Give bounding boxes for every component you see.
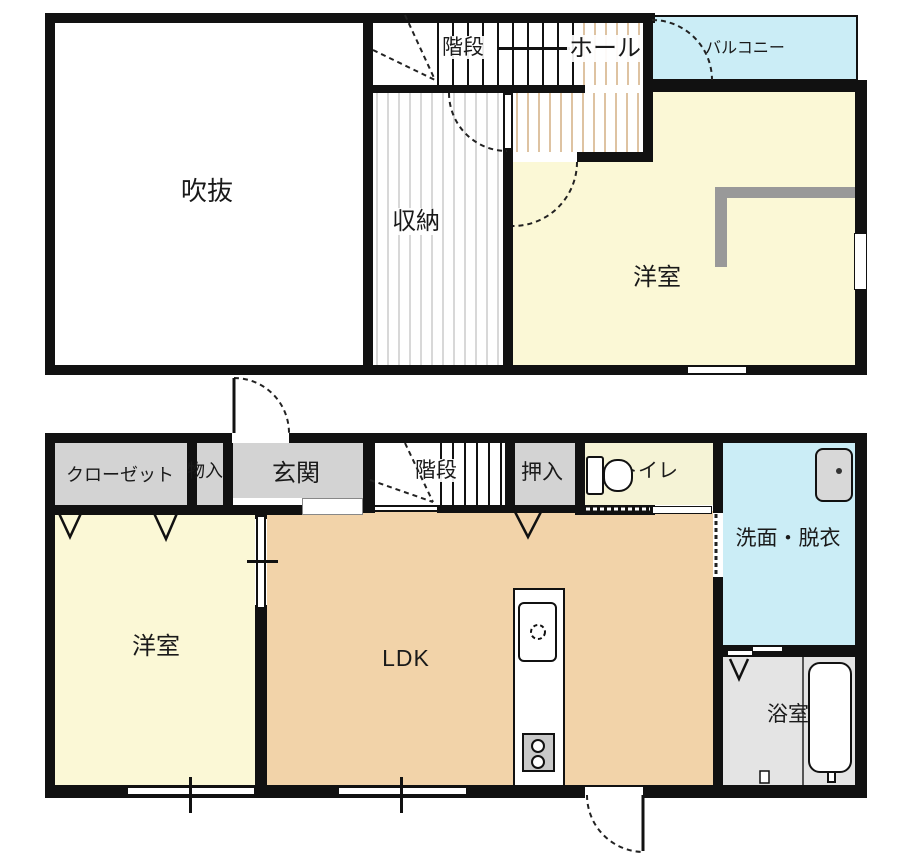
bedroom-rail-vertical — [715, 187, 727, 267]
wall — [855, 433, 867, 798]
window-2f-bottom — [687, 366, 747, 374]
storage-door-leaf — [503, 93, 513, 150]
entrance-door-opening — [232, 433, 289, 443]
window-2f-right — [854, 233, 867, 290]
wall — [855, 80, 867, 375]
room-label-washroom: 洗面・脱衣 — [718, 528, 858, 550]
sliding-door-tick — [247, 560, 278, 563]
room-label-entrance: 玄関 — [246, 461, 346, 486]
room-label-small-storage: 物入 — [172, 462, 238, 481]
wall — [437, 505, 512, 513]
kitchen-sink-icon — [518, 602, 557, 662]
hall-floor-hatch-lower — [516, 93, 643, 152]
ldk-terrace-door-opening — [585, 787, 643, 798]
wall — [575, 505, 655, 515]
wall — [45, 433, 867, 443]
wall — [45, 433, 55, 798]
entrance-step — [302, 498, 363, 515]
room-label-oshiire: 押入 — [492, 462, 592, 484]
wall — [45, 13, 655, 23]
room-label-bedroom-2f: 洋室 — [597, 265, 717, 290]
door-opening — [513, 152, 577, 162]
window-mullion — [400, 777, 403, 813]
wall — [643, 80, 867, 92]
wall — [713, 577, 723, 798]
wall — [713, 443, 723, 513]
bathtub-tap — [827, 771, 836, 783]
wall — [512, 505, 575, 513]
window-mullion — [189, 777, 192, 813]
room-label-bedroom-1f: 洋室 — [96, 634, 216, 659]
stove-icon — [522, 733, 555, 772]
toilet-counter-opening — [652, 506, 712, 514]
room-label-stairs-2f: 階段 — [413, 37, 513, 59]
wall — [577, 152, 653, 162]
wall — [363, 443, 375, 513]
wall — [363, 13, 373, 375]
room-bedroom-2f-upper — [653, 92, 855, 162]
room-label-ldk: LDK — [346, 646, 466, 670]
bedroom-rail-horizontal — [715, 187, 858, 198]
stair-bottom-step — [375, 505, 437, 512]
room-label-hall: ホール — [563, 36, 647, 61]
washroom-bath-sliding-door — [727, 650, 753, 656]
room-ldk — [267, 513, 713, 785]
wall — [45, 13, 55, 375]
room-label-storage-2f: 収納 — [366, 209, 466, 234]
washroom-bath-sliding-door — [752, 646, 783, 652]
wall — [503, 148, 513, 365]
room-label-bath: 浴室 — [738, 704, 838, 726]
wall — [255, 605, 267, 785]
washbasin-icon — [815, 448, 853, 502]
room-label-stairs-1f: 階段 — [404, 460, 468, 482]
wall — [363, 85, 585, 93]
room-label-balcony: バルコニー — [675, 41, 815, 58]
room-label-void: 吹抜 — [147, 178, 267, 205]
room-label-closet: クローゼット — [58, 466, 182, 485]
room-label-toilet: トイレ — [598, 461, 698, 482]
floor-plan-canvas: 吹抜 収納 階段 ホール バルコニー 洋室 — [0, 0, 900, 863]
